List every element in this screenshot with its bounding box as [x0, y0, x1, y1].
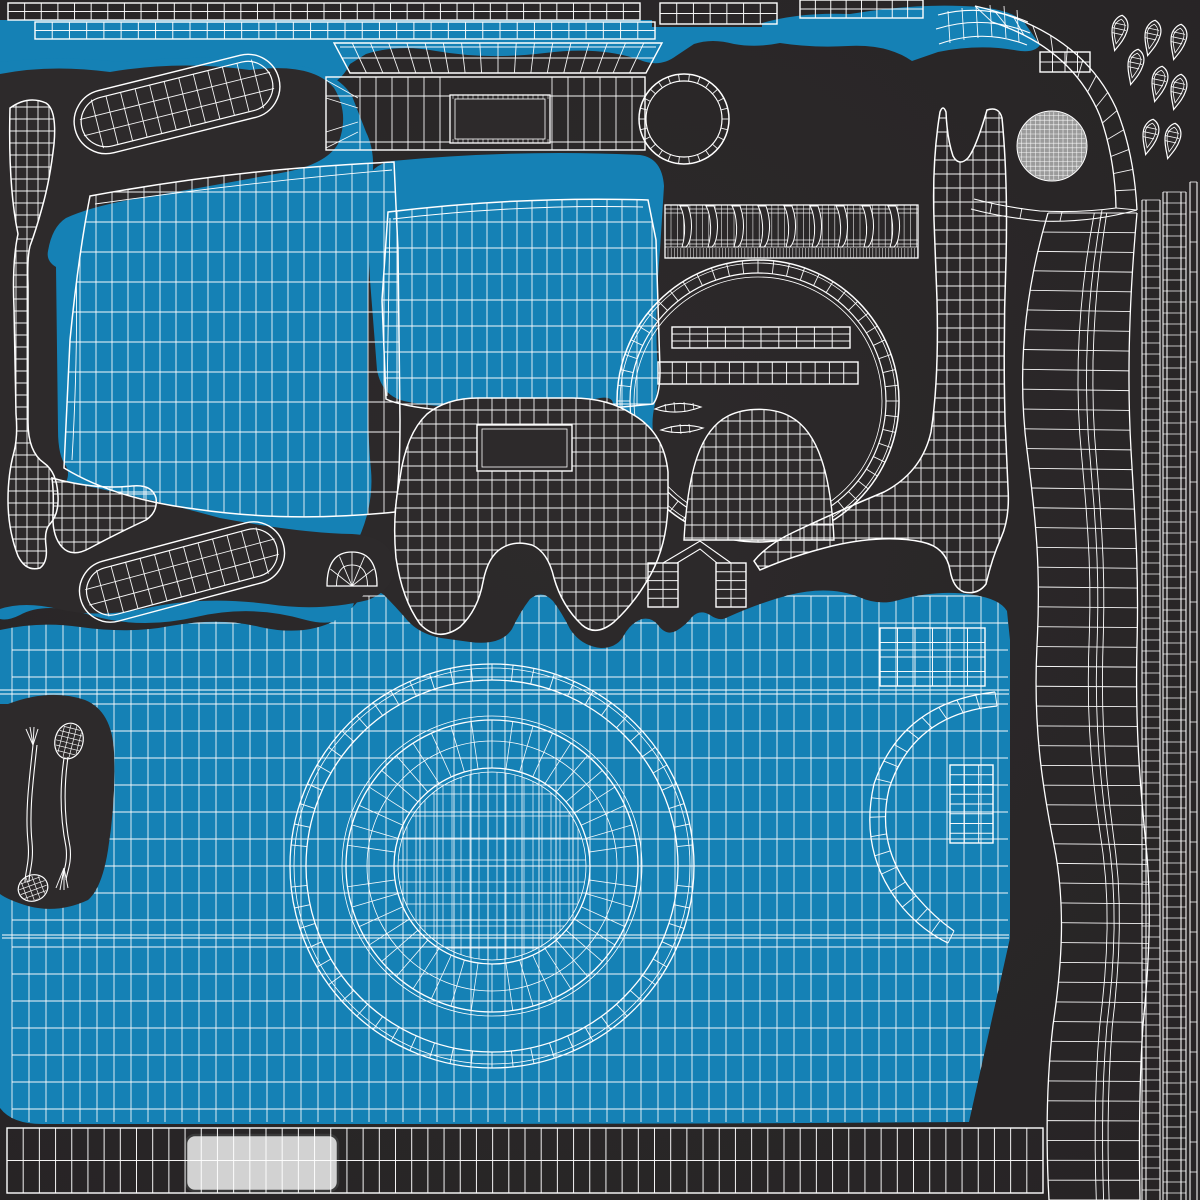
uv-texture-sheet — [0, 0, 1200, 1200]
dark-pins-region — [0, 695, 114, 909]
bottom-light-panel — [186, 1135, 338, 1191]
uv-unwrap-canvas — [0, 0, 1200, 1200]
sphere-knob — [1017, 111, 1087, 181]
